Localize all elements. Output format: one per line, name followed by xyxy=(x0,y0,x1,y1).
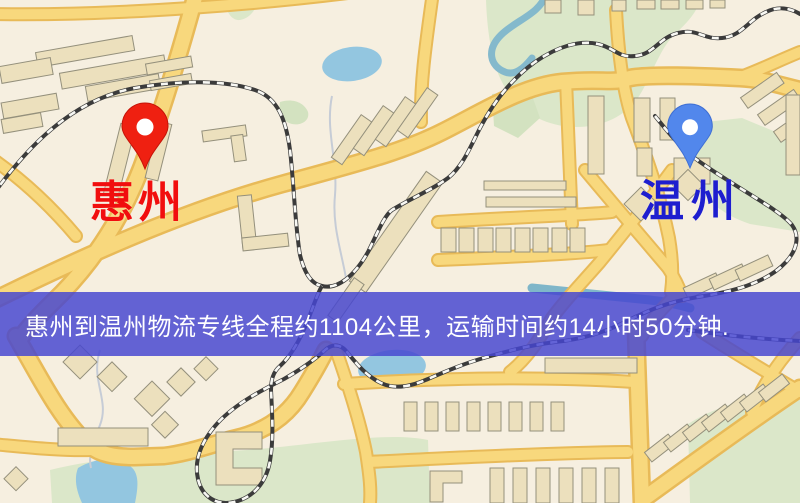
map-canvas[interactable] xyxy=(0,0,800,503)
info-banner: 惠州到温州物流专线全程约1104公里，运输时间约14小时50分钟. xyxy=(0,292,800,356)
destination-label: 温州 xyxy=(640,180,742,224)
origin-label: 惠州 xyxy=(90,181,186,225)
map-container: 惠州 温州 惠州到温州物流专线全程约1104公里，运输时间约14小时50分钟. xyxy=(0,0,800,503)
banner-text: 惠州到温州物流专线全程约1104公里，运输时间约14小时50分钟. xyxy=(0,307,729,342)
